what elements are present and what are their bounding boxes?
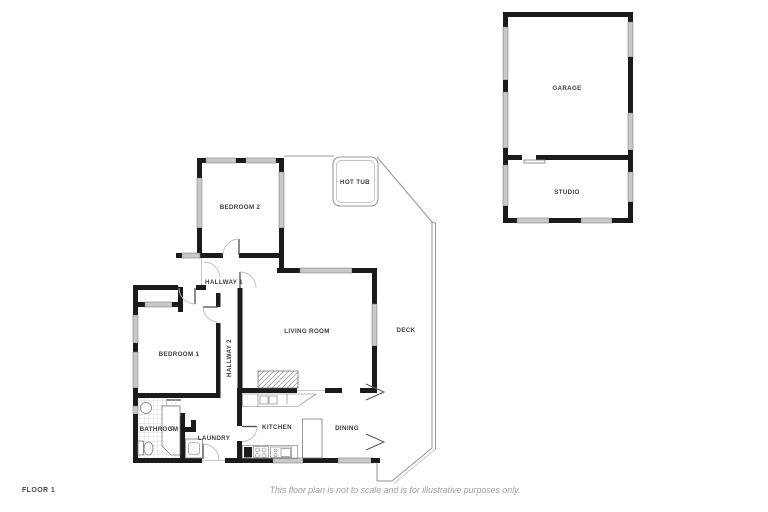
- laundry-exterior-door: [203, 444, 219, 460]
- toilet: [144, 442, 153, 455]
- bedroom2-window: [197, 178, 202, 228]
- kitchen-counter: [243, 394, 317, 407]
- garage-window: [628, 113, 633, 150]
- kitchen-island: [303, 419, 323, 458]
- room-label-bedroom-2: BEDROOM 2: [220, 204, 261, 211]
- studio-sliding-door: [524, 160, 545, 163]
- bedroom1-door: [203, 307, 218, 322]
- room-label-hot-tub: HOT TUB: [340, 179, 370, 186]
- hallway1-window: [182, 253, 200, 258]
- bedroom1-window: [133, 352, 138, 388]
- room-label-laundry: LAUNDRY: [198, 435, 231, 442]
- bathroom-window: [133, 406, 138, 414]
- room-label-kitchen: KITCHEN: [262, 424, 292, 431]
- studio-window: [581, 218, 612, 223]
- kitchen-sink: [260, 396, 268, 404]
- bedroom2-window: [206, 158, 236, 163]
- floorplan-drawing: GARAGESTUDIOBEDROOM 2HOT TUBHALLWAY 1LIV…: [0, 0, 768, 512]
- garage-window: [503, 92, 508, 148]
- oven: [244, 447, 252, 458]
- room-label-hallway-1: HALLWAY 1: [205, 279, 243, 286]
- room-label-hallway-2: HALLWAY 2: [226, 339, 233, 377]
- kitchen-sink: [269, 396, 277, 404]
- bathroom-sink: [141, 403, 152, 414]
- studio-window: [628, 172, 633, 202]
- room-label-deck: DECK: [397, 327, 416, 334]
- garage-window: [503, 27, 508, 80]
- room-label-bedroom-1: BEDROOM 1: [159, 351, 200, 358]
- bedroom2-door: [223, 239, 239, 255]
- disclaimer-text: This floor plan is not to scale and is f…: [270, 485, 521, 495]
- studio-window: [503, 165, 508, 206]
- dining-slider-door: [338, 458, 373, 463]
- room-label-garage: GARAGE: [552, 85, 581, 92]
- room-label-studio: STUDIO: [554, 189, 579, 196]
- deck-door-arrow: [366, 434, 384, 450]
- room-label-bathroom: BATHROOM: [140, 426, 179, 433]
- bedroom1-window: [145, 302, 172, 307]
- room-label-living-room: LIVING ROOM: [284, 328, 329, 335]
- living-room-fixtures: [258, 371, 298, 388]
- kitchen-door: [242, 427, 257, 442]
- bedroom2-window: [246, 158, 276, 163]
- fireplace-hearth: [258, 371, 298, 388]
- room-label-dining: DINING: [335, 425, 359, 432]
- floorplan-page: GARAGESTUDIOBEDROOM 2HOT TUBHALLWAY 1LIV…: [0, 0, 768, 512]
- living-room-window: [372, 304, 377, 346]
- living-room-window: [300, 268, 352, 273]
- garage-window: [628, 22, 633, 57]
- toilet-tank: [138, 441, 144, 455]
- bedroom1-window: [133, 315, 138, 343]
- floor-label: FLOOR 1: [22, 487, 55, 494]
- hallway1-door: [204, 262, 220, 278]
- studio-window: [517, 218, 549, 223]
- bedroom2-window: [279, 172, 284, 228]
